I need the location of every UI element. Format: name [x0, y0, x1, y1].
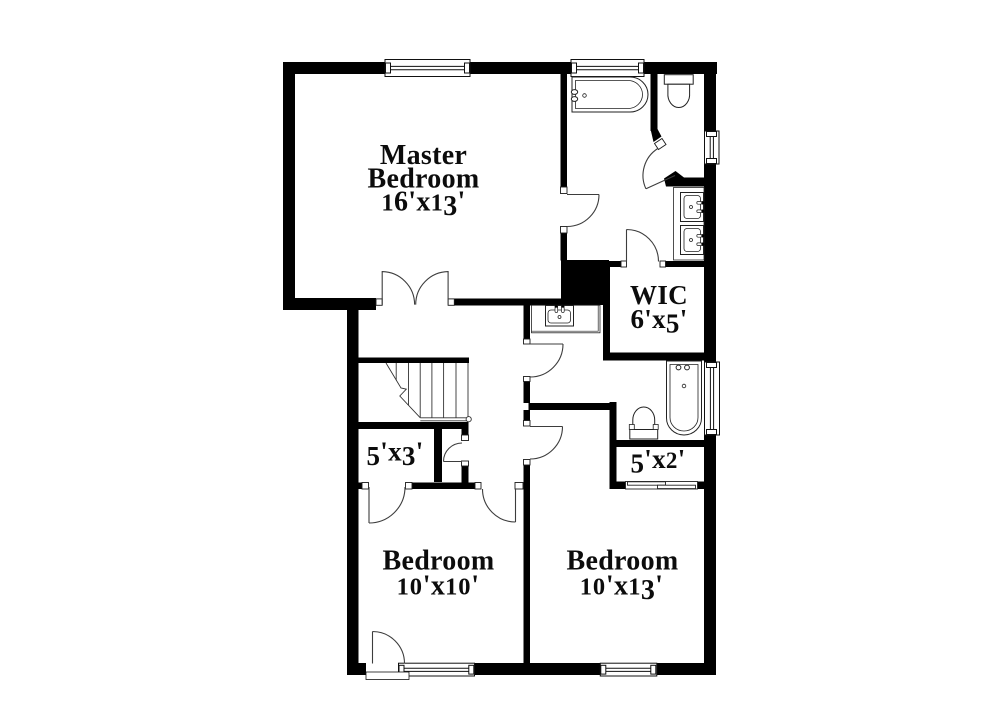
- svg-text:6'x5': 6'x5': [630, 304, 687, 338]
- svg-text:5'x2': 5'x2': [630, 444, 685, 478]
- svg-text:10'x10': 10'x10': [397, 571, 480, 602]
- svg-text:5'x3': 5'x3': [366, 437, 423, 471]
- svg-text:16'x13': 16'x13': [381, 187, 465, 223]
